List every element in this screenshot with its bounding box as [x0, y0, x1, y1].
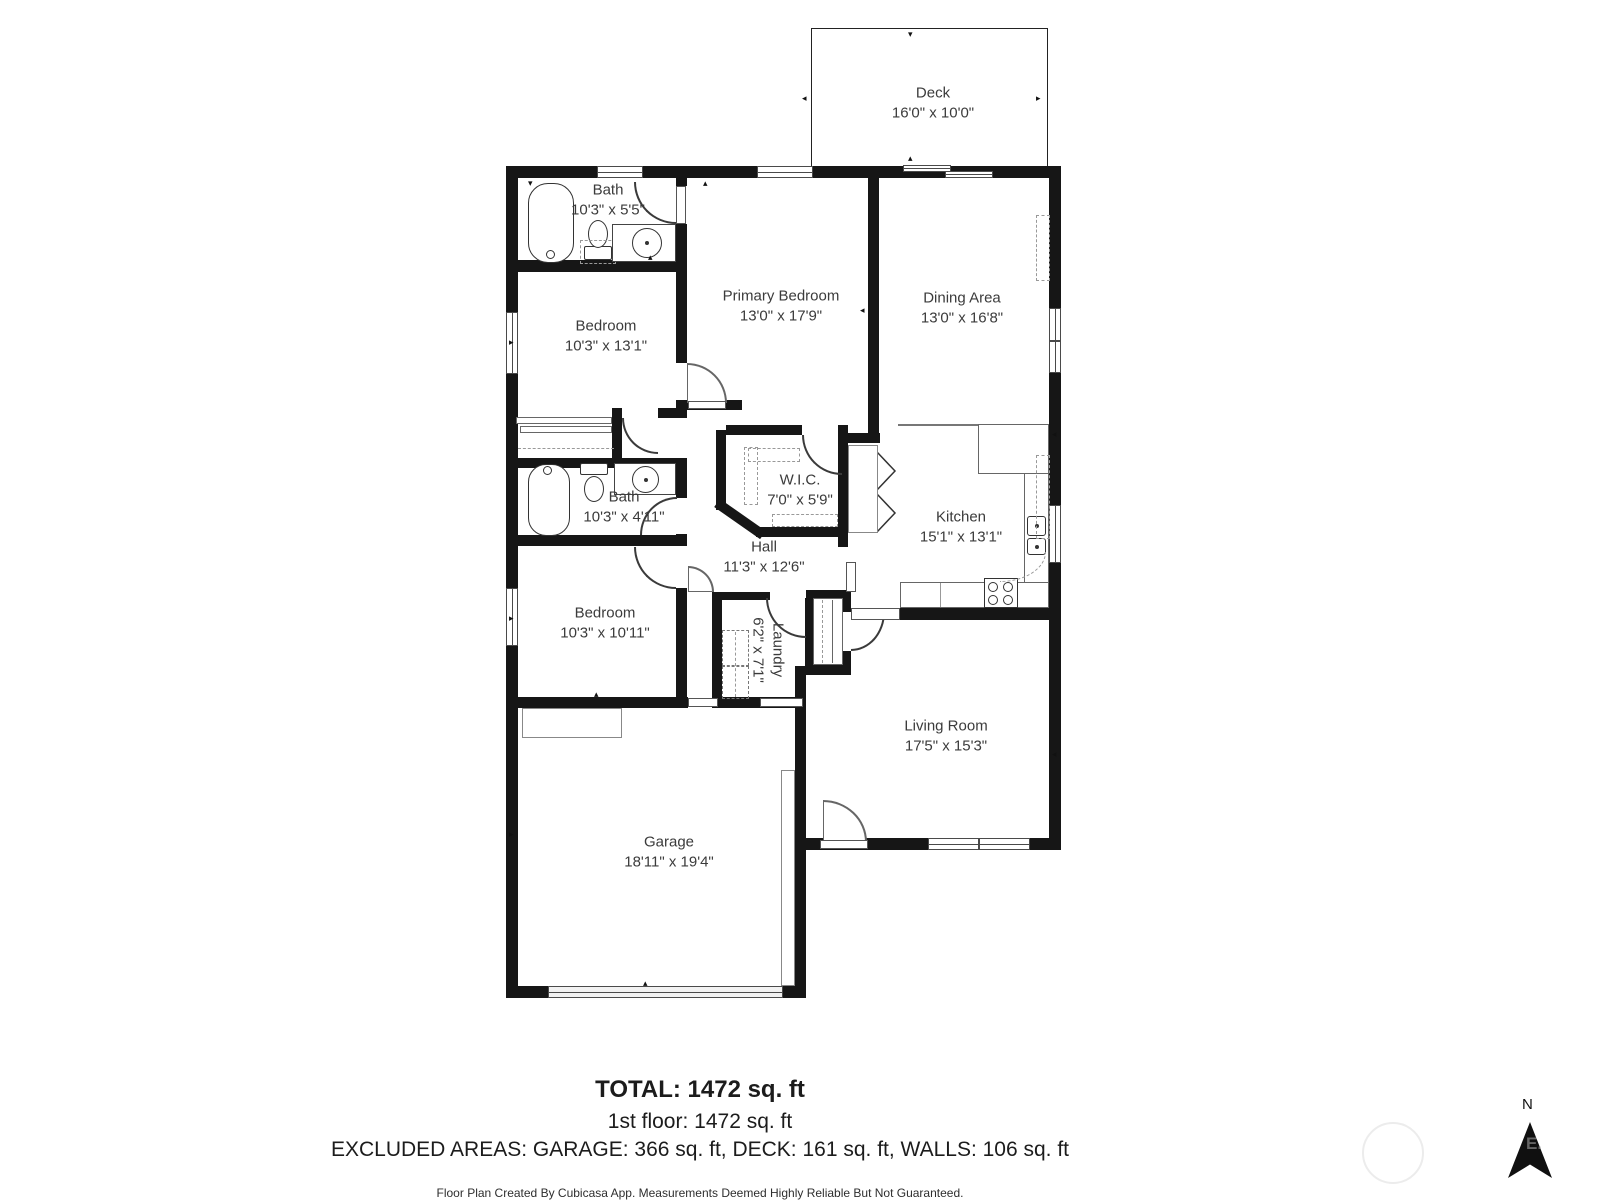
tick-mark: ◂ [860, 306, 865, 315]
room-name: Bath [571, 181, 645, 201]
tick-mark: ▸ [509, 830, 514, 839]
door-leaf [820, 840, 868, 849]
room-dims: 16'0" x 10'0" [892, 103, 974, 123]
closet-shelf [744, 447, 758, 505]
room-label-kitchen: Kitchen 15'1" x 13'1" [920, 508, 1002, 547]
room-dims: 13'0" x 17'9" [723, 306, 840, 326]
room-dims: 10'3" x 4'11" [583, 507, 664, 527]
room-name: Garage [624, 833, 714, 853]
wall-segment [506, 535, 687, 546]
room-name: Deck [892, 84, 974, 104]
room-dims: 6'2" x 7'1" [749, 617, 769, 683]
wall-segment [676, 224, 687, 363]
closet-rod [832, 600, 833, 663]
doorway-threshold [760, 698, 803, 707]
room-label-bath-upper: Bath 10'3" x 5'5" [571, 181, 645, 220]
wall-segment [714, 499, 766, 539]
closet-shelf [772, 514, 838, 527]
door-arc [802, 435, 842, 475]
floor-plan-canvas: ▾ ◂ ▸ ▴ ▾ ▴ ▴ ▸ ◂ ◂ ◂ ▸ ▴ ▴ ▸ Deck 16'0"… [0, 0, 1600, 1200]
door-arc [634, 547, 676, 589]
burner-icon [1003, 595, 1013, 605]
window [928, 838, 979, 850]
room-name: Hall [723, 538, 804, 558]
counter-edge [898, 424, 980, 426]
burner-icon [988, 582, 998, 592]
wall-segment [612, 408, 622, 458]
wall-segment [726, 425, 802, 435]
first-floor-area-text: 1st floor: 1472 sq. ft [331, 1110, 1069, 1134]
sink-drain-icon [645, 241, 649, 245]
wall-segment [676, 588, 687, 708]
wall-segment [838, 533, 848, 547]
room-dims: 10'3" x 10'11" [560, 623, 650, 643]
door-leaf [676, 186, 686, 224]
window [1049, 341, 1061, 373]
garage-door [548, 986, 783, 998]
burner-icon [1003, 582, 1013, 592]
window [597, 166, 643, 178]
appliance-divider [735, 632, 736, 697]
room-dims: 7'0" x 5'9" [767, 490, 833, 510]
room-name: Bedroom [565, 317, 647, 337]
tick-mark: ▸ [509, 338, 514, 347]
wall-segment [716, 430, 726, 510]
window [979, 838, 1030, 850]
wall-segment [795, 666, 806, 998]
wall-segment [805, 598, 813, 670]
wall-segment [843, 651, 851, 675]
tick-mark: ▸ [509, 614, 514, 623]
window [757, 166, 813, 178]
room-dims: 11'3" x 12'6" [723, 557, 804, 577]
room-label-wic: W.I.C. 7'0" x 5'9" [767, 471, 833, 510]
bifold-door-icon [876, 451, 898, 533]
room-dims: 18'11" x 19'4" [624, 852, 714, 872]
doorway-threshold [688, 698, 718, 707]
upper-cabinet-outline [1036, 215, 1050, 281]
tick-mark: ▸ [1036, 94, 1041, 103]
room-name: Living Room [904, 717, 987, 737]
closet-shelf [518, 448, 614, 449]
room-name: Laundry [768, 617, 788, 683]
door-arc [823, 800, 867, 842]
counter-edge [940, 583, 941, 607]
watermark-text: E. [1526, 1134, 1542, 1154]
tick-mark: ▾ [528, 179, 533, 188]
watermark-circle [1362, 1122, 1424, 1184]
wall-segment [676, 166, 687, 186]
counter [900, 582, 1049, 608]
tick-mark: ▴ [908, 154, 913, 163]
tick-mark: ▴ [648, 253, 653, 262]
door-arc [622, 418, 658, 454]
room-label-bath-lower: Bath 10'3" x 4'11" [583, 488, 664, 527]
garage-step [522, 708, 622, 738]
disclaimer-text: Floor Plan Created By Cubicasa App. Meas… [331, 1186, 1069, 1200]
cabinet-outline [580, 240, 616, 264]
room-label-bedroom-upper: Bedroom 10'3" x 13'1" [565, 317, 647, 356]
tub-drain-icon [546, 250, 555, 259]
tick-mark: ▾ [908, 30, 913, 39]
sliding-closet-door [520, 426, 612, 433]
pantry-closet [848, 445, 878, 533]
tick-mark: ◂ [802, 94, 807, 103]
wall-segment [838, 433, 880, 443]
room-dims: 17'5" x 15'3" [904, 736, 987, 756]
wall-segment [843, 590, 851, 612]
door-leaf [688, 401, 726, 409]
entry-closet [813, 598, 843, 665]
bathtub-icon [528, 464, 570, 536]
room-dims: 15'1" x 13'1" [920, 527, 1002, 547]
room-dims: 10'3" x 13'1" [565, 336, 647, 356]
room-name: Dining Area [921, 289, 1003, 309]
room-label-garage: Garage 18'11" x 19'4" [624, 833, 714, 872]
wall-segment [676, 458, 687, 498]
wall-segment [868, 166, 879, 443]
doorway-threshold [846, 562, 856, 592]
closet-shelf [822, 600, 823, 663]
tick-mark: ◂ [1052, 750, 1057, 759]
room-dims: 10'3" x 5'5" [571, 200, 645, 220]
room-dims: 13'0" x 16'8" [921, 308, 1003, 328]
room-label-laundry: Laundry 6'2" x 7'1" [749, 617, 788, 683]
tub-drain-icon [543, 466, 552, 475]
sink-drain-icon [644, 478, 648, 482]
window [1049, 505, 1061, 563]
burner-icon [988, 595, 998, 605]
wall-segment [712, 592, 770, 600]
doorway-threshold [851, 608, 900, 620]
wall-segment [756, 527, 838, 537]
excluded-areas-text: EXCLUDED AREAS: GARAGE: 366 sq. ft, DECK… [331, 1138, 1069, 1162]
north-label: N [1522, 1096, 1533, 1113]
room-name: Bedroom [560, 604, 650, 624]
sliding-door [945, 171, 993, 178]
sliding-door [903, 165, 951, 172]
wall-segment [712, 592, 722, 708]
room-label-primary-bedroom: Primary Bedroom 13'0" x 17'9" [723, 287, 840, 326]
room-name: Bath [583, 488, 664, 508]
room-name: W.I.C. [767, 471, 833, 491]
upper-cabinet-outline [1036, 455, 1050, 539]
total-area-text: TOTAL: 1472 sq. ft [331, 1076, 1069, 1104]
summary-block: TOTAL: 1472 sq. ft 1st floor: 1472 sq. f… [331, 1076, 1069, 1200]
garage-bay [781, 770, 795, 986]
tick-mark: ◂ [1052, 430, 1057, 439]
room-name: Kitchen [920, 508, 1002, 528]
tick-mark: ▴ [643, 979, 648, 988]
room-label-bedroom-lower: Bedroom 10'3" x 10'11" [560, 604, 650, 643]
room-name: Primary Bedroom [723, 287, 840, 307]
sink-drain-icon [1035, 545, 1039, 549]
wall-segment [506, 166, 518, 998]
room-label-hall: Hall 11'3" x 12'6" [723, 538, 804, 577]
window [1049, 308, 1061, 341]
tick-mark: ▴ [703, 179, 708, 188]
wall-segment [900, 608, 1049, 620]
room-label-living-room: Living Room 17'5" x 15'3" [904, 717, 987, 756]
tick-mark: ▴ [594, 690, 599, 699]
toilet-icon [580, 463, 608, 475]
door-arc [687, 363, 727, 403]
door-arc [688, 566, 714, 592]
room-label-deck: Deck 16'0" x 10'0" [892, 84, 974, 123]
room-label-dining-area: Dining Area 13'0" x 16'8" [921, 289, 1003, 328]
sliding-closet-door [516, 417, 612, 424]
